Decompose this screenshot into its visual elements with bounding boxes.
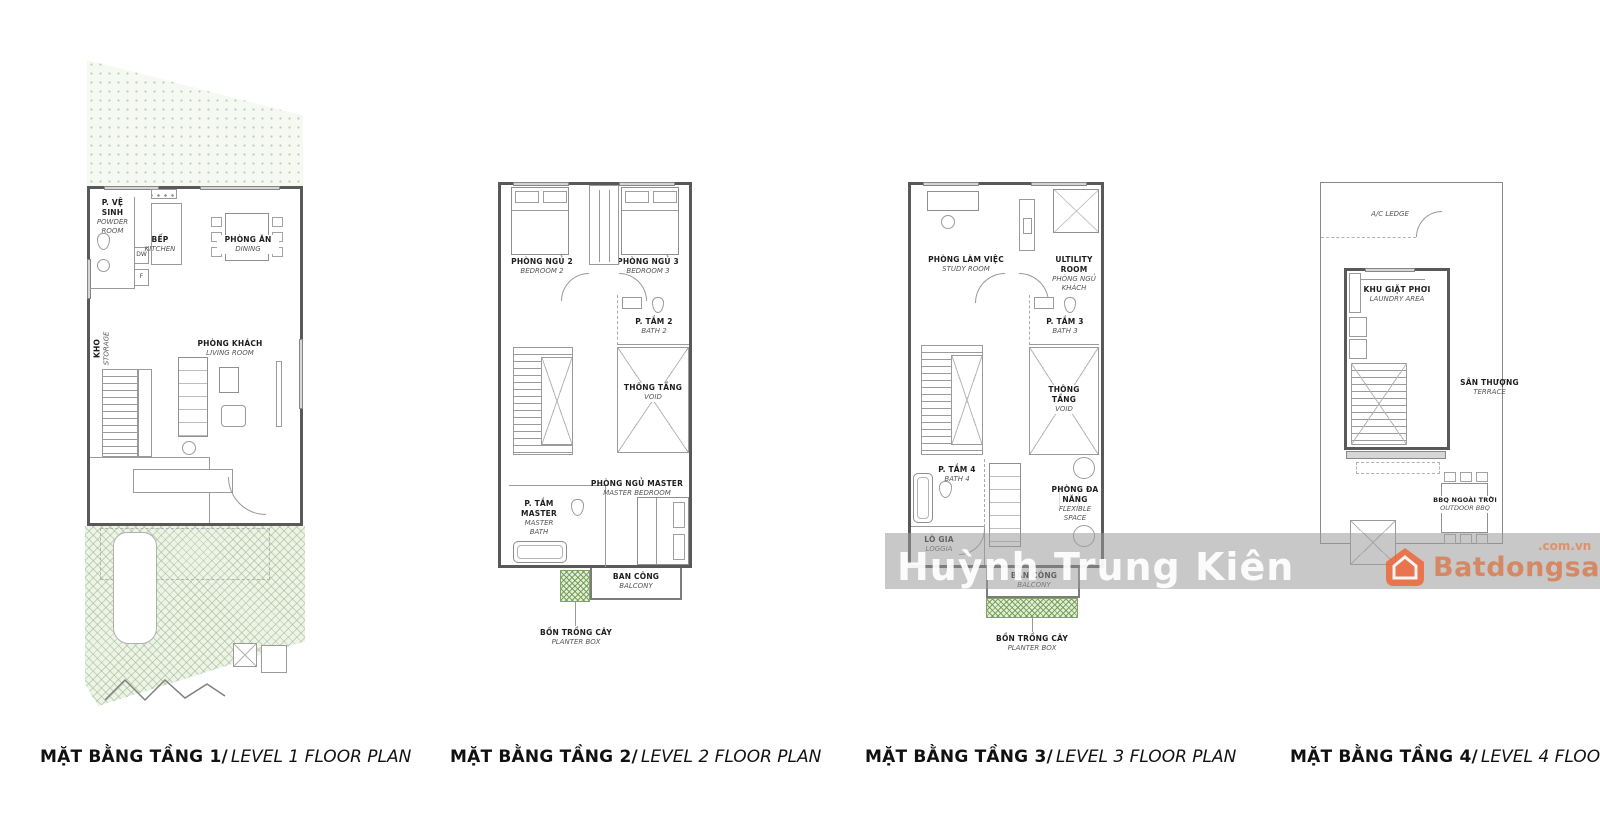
room-name-vi: THÔNG TẦNG — [623, 383, 683, 393]
master-bath-label: P. TẮM MASTER MASTER BATH — [517, 499, 561, 537]
floor-plan-level-3: PHÒNG LÀM VIỆC STUDY ROOM ULTILITY ROOM … — [908, 182, 1104, 662]
room-name-vi: BAN CÔNG — [598, 572, 674, 582]
toilet-icon — [652, 297, 664, 313]
floor-plan-level-1: P. VỆ SINH POWDER ROOM DW F BẾP KITCHEN … — [85, 60, 307, 710]
kitchen-island — [151, 203, 182, 265]
room-name-vi: PHÒNG NGỦ 2 — [509, 257, 575, 267]
sofa — [178, 357, 208, 437]
building-outline: PHÒNG NGỦ 2 BEDROOM 2 PHÒNG NGỦ 3 BEDROO… — [498, 182, 692, 568]
caption-level-4: MẶT BẰNG TẦNG 4/LEVEL 4 FLOOR PLAN — [1290, 747, 1600, 767]
caption-en: LEVEL 2 FLOOR PLAN — [641, 747, 821, 767]
caption-level-3: MẶT BẰNG TẦNG 3/LEVEL 3 FLOOR PLAN — [865, 747, 1236, 767]
room-name-en: KITCHEN — [130, 245, 190, 254]
gate-box — [233, 643, 257, 667]
caption-vi: MẶT BẰNG TẦNG 3/ — [865, 747, 1053, 767]
batdongsan-domain-suffix: .com.vn — [1538, 539, 1591, 553]
planter-box-label: BỒN TRỒNG CÂY PLANTER BOX — [522, 628, 630, 647]
study-room-label: PHÒNG LÀM VIỆC STUDY ROOM — [923, 255, 1009, 274]
stairs-flight-2 — [138, 369, 152, 457]
pillow — [543, 191, 567, 203]
caption-en: LEVEL 4 FLOOR PLAN — [1481, 747, 1600, 767]
caption-en: LEVEL 1 FLOOR PLAN — [231, 747, 411, 767]
stair-void-overlay — [541, 357, 573, 445]
bed-bedroom-3 — [621, 187, 679, 255]
room-name-en: BALCONY — [598, 582, 674, 591]
room-name-vi: KHU GIẶT PHƠI — [1357, 285, 1437, 295]
stair-void-overlay — [1351, 363, 1407, 445]
tv-console — [276, 361, 282, 427]
void-label: THÔNG TẦNG VOID — [623, 383, 683, 402]
caption-vi: MẶT BẰNG TẦNG 2/ — [450, 747, 638, 767]
toilet-icon — [97, 233, 110, 250]
bath-2: P. TẮM 2 BATH 2 — [617, 295, 689, 345]
planter-leader-line — [1032, 618, 1033, 632]
room-name-en: BATH 2 — [628, 327, 680, 336]
clothes-rail — [1357, 279, 1425, 280]
caption-level-2: MẶT BẰNG TẦNG 2/LEVEL 2 FLOOR PLAN — [450, 747, 821, 767]
bath-3-label: P. TẮM 3 BATH 3 — [1040, 317, 1090, 336]
batdongsan-wordmark: Batdongsan — [1433, 552, 1600, 583]
dining-chair — [211, 217, 222, 227]
car — [113, 532, 157, 644]
flexible-space-label: PHÒNG ĐA NĂNG FLEXIBLE SPACE — [1049, 485, 1101, 523]
room-name-en: DINING — [217, 245, 279, 254]
blanket-line — [512, 210, 568, 211]
bed-cover-lines — [1054, 190, 1098, 232]
laundry-room: KHU GIẶT PHƠI LAUNDRY AREA — [1344, 268, 1450, 450]
desk — [927, 191, 979, 211]
powder-room: P. VỆ SINH POWDER ROOM — [90, 197, 135, 289]
laundry-label: KHU GIẶT PHƠI LAUNDRY AREA — [1357, 285, 1437, 304]
powder-room-label: P. VỆ SINH POWDER ROOM — [91, 198, 134, 236]
room-name-vi: P. TẮM 2 — [628, 317, 680, 327]
toilet-icon — [1064, 297, 1076, 313]
floor-plan-level-4: A/C LEDGE KHU GIẶT PHƠI LAUNDRY AREA SÂN… — [1320, 180, 1506, 580]
vanity — [622, 297, 642, 309]
pillow — [673, 502, 685, 528]
storage-label: KHO STORAGE — [93, 320, 112, 376]
watermark-text: Huỳnh Trung Kiên — [897, 545, 1294, 589]
building-outline: PHÒNG LÀM VIỆC STUDY ROOM ULTILITY ROOM … — [908, 182, 1104, 568]
lounge-chair — [1073, 457, 1095, 479]
railing-sill — [1346, 451, 1446, 459]
terrace-label: SÂN THƯỢNG TERRACE — [1452, 378, 1527, 397]
pillow — [625, 191, 649, 203]
room-name-vi: KHO — [93, 320, 103, 376]
room-name-en: STUDY ROOM — [923, 265, 1009, 274]
utility-room-label: ULTILITY ROOM PHÒNG NGỦ KHÁCH — [1045, 255, 1103, 293]
room-name-en: TERRACE — [1452, 388, 1527, 397]
window — [619, 182, 675, 186]
room-name-en: FLEXIBLE SPACE — [1049, 505, 1101, 523]
bed-bedroom-2 — [511, 187, 569, 255]
wardrobe-divider — [599, 190, 600, 262]
desk-chair — [941, 215, 955, 229]
stair-void-overlay — [951, 355, 983, 445]
room-name-en: VOID — [623, 393, 683, 402]
ac-ledge-boundary — [1321, 237, 1416, 238]
room-name-en: BATH 3 — [1040, 327, 1090, 336]
room-name-vi: P. TẮM 3 — [1040, 317, 1090, 327]
door-arc — [975, 273, 1005, 303]
pillow — [673, 534, 685, 560]
cabinet — [1349, 273, 1361, 313]
window — [513, 182, 569, 186]
room-name-en: PLANTER BOX — [522, 638, 630, 647]
room-name-vi: PHÒNG NGỦ KHÁCH — [1045, 275, 1103, 293]
washer — [1349, 339, 1367, 359]
kitchen-label: BẾP KITCHEN — [130, 235, 190, 254]
dining-label: PHÒNG ĂN DINING — [217, 235, 279, 254]
bbq-label: BBQ NGOÀI TRỜI OUTDOOR BBQ — [1432, 496, 1498, 513]
vanity — [1034, 297, 1054, 309]
coffee-table — [219, 367, 239, 393]
caption-vi: MẶT BẰNG TẦNG 4/ — [1290, 747, 1478, 767]
room-name-vi: BẾP — [130, 235, 190, 245]
room-name-vi: PHÒNG NGỦ 3 — [615, 257, 681, 267]
balcony: BAN CÔNG BALCONY — [590, 568, 682, 600]
room-name-vi: PHÒNG ĂN — [217, 235, 279, 245]
room-name-vi: SÂN THƯỢNG — [1452, 378, 1527, 388]
room-name-en: A/C LEDGE — [1345, 210, 1435, 219]
bathtub — [513, 541, 567, 563]
bed-utility — [1053, 189, 1099, 233]
window — [1365, 268, 1415, 272]
master-bedroom-label: PHÒNG NGỦ MASTER MASTER BEDROOM — [581, 479, 693, 498]
bath-4-label: P. TẮM 4 BATH 4 — [933, 465, 981, 484]
wardrobe-divider — [609, 190, 610, 262]
room-name-en: MASTER BATH — [517, 519, 561, 537]
room-name-en: OUTDOOR BBQ — [1432, 504, 1498, 512]
planter-leader-line — [575, 602, 576, 626]
toilet-icon — [571, 499, 584, 516]
room-name-en: POWDER ROOM — [91, 218, 134, 236]
building-outline: P. VỆ SINH POWDER ROOM DW F BẾP KITCHEN … — [87, 186, 303, 526]
caption-vi: MẶT BẰNG TẦNG 1/ — [40, 747, 228, 767]
room-name-vi: PHÒNG KHÁCH — [195, 339, 265, 349]
batdongsan-logo: Batdongsan .com.vn — [1385, 547, 1600, 587]
bath-4: P. TẮM 4 BATH 4 — [911, 459, 985, 527]
washer — [1349, 317, 1367, 337]
room-name-vi: P. TẮM MASTER — [517, 499, 561, 519]
room-name-vi: P. TẮM 4 — [933, 465, 981, 475]
bathtub-inner — [917, 477, 929, 519]
interior-wall — [90, 457, 210, 458]
planter-box — [560, 570, 590, 602]
room-name-vi: PHÒNG LÀM VIỆC — [923, 255, 1009, 265]
entry-door-arc — [228, 477, 266, 515]
awning-outline — [1356, 462, 1440, 474]
window — [1031, 182, 1087, 186]
gate-post — [261, 645, 287, 673]
room-name-en: STORAGE — [102, 320, 111, 376]
bath-3: P. TẮM 3 BATH 3 — [1029, 295, 1099, 345]
stove-icon — [151, 189, 177, 199]
sink-icon — [97, 259, 110, 272]
living-room-label: PHÒNG KHÁCH LIVING ROOM — [195, 339, 265, 358]
planter-box-label: BỒN TRỒNG CÂY PLANTER BOX — [966, 634, 1098, 653]
void-label: THÔNG TẦNG VOID — [1035, 385, 1093, 414]
room-name-vi: BỒN TRỒNG CÂY — [522, 628, 630, 638]
toilet-icon — [939, 481, 952, 498]
room-name-en: LAUNDRY AREA — [1357, 295, 1437, 304]
bed-master — [637, 497, 689, 565]
bathtub — [913, 473, 933, 523]
stairs — [102, 369, 138, 457]
room-name-en: VOID — [1035, 405, 1093, 414]
room-name-vi: BỒN TRỒNG CÂY — [966, 634, 1098, 644]
watermark-band: Huỳnh Trung Kiên Batdongsan .com.vn — [885, 533, 1600, 589]
fridge-label: F — [140, 274, 143, 281]
room-name-en: PLANTER BOX — [966, 644, 1098, 653]
room-name-vi: PHÒNG ĐA NĂNG — [1049, 485, 1101, 505]
planter-box — [986, 598, 1078, 618]
rear-garden — [87, 60, 303, 186]
room-name-en: ULTILITY ROOM — [1045, 255, 1103, 275]
batdongsan-house-icon — [1385, 547, 1425, 587]
bathtub-inner — [517, 545, 563, 559]
window — [923, 182, 979, 186]
bbq-chair — [1444, 472, 1456, 482]
caption-en: LEVEL 3 FLOOR PLAN — [1056, 747, 1236, 767]
ac-ledge-label: A/C LEDGE — [1345, 210, 1435, 219]
balcony-label: BAN CÔNG BALCONY — [598, 572, 674, 591]
bbq-chair — [1476, 472, 1488, 482]
blanket-line — [656, 498, 657, 564]
door-arc — [561, 273, 589, 301]
room-name-vi: BBQ NGOÀI TRỜI — [1432, 496, 1498, 504]
bbq-chair — [1460, 472, 1472, 482]
pillow — [653, 191, 677, 203]
bedroom-2-label: PHÒNG NGỦ 2 BEDROOM 2 — [509, 257, 575, 276]
window — [299, 339, 303, 409]
console-desk — [133, 469, 233, 493]
cabinet-inner — [1023, 218, 1032, 234]
cabinet — [1019, 199, 1035, 251]
floor-plan-level-2: PHÒNG NGỦ 2 BEDROOM 2 PHÒNG NGỦ 3 BEDROO… — [498, 182, 692, 662]
room-name-vi: THÔNG TẦNG — [1035, 385, 1093, 405]
fence-zigzag — [103, 668, 228, 704]
fridge-box: F — [134, 269, 149, 286]
armchair — [221, 405, 246, 427]
caption-level-1: MẶT BẰNG TẦNG 1/LEVEL 1 FLOOR PLAN — [40, 747, 411, 767]
bath-2-label: P. TẮM 2 BATH 2 — [628, 317, 680, 336]
room-name-vi: PHÒNG NGỦ MASTER — [581, 479, 693, 489]
room-name-en: BEDROOM 2 — [509, 267, 575, 276]
pillow — [515, 191, 539, 203]
side-table — [182, 441, 196, 455]
wardrobe — [589, 185, 619, 265]
dining-chair — [272, 217, 283, 227]
room-name-vi: P. VỆ SINH — [91, 198, 134, 218]
window — [200, 186, 280, 190]
blanket-line — [622, 210, 678, 211]
